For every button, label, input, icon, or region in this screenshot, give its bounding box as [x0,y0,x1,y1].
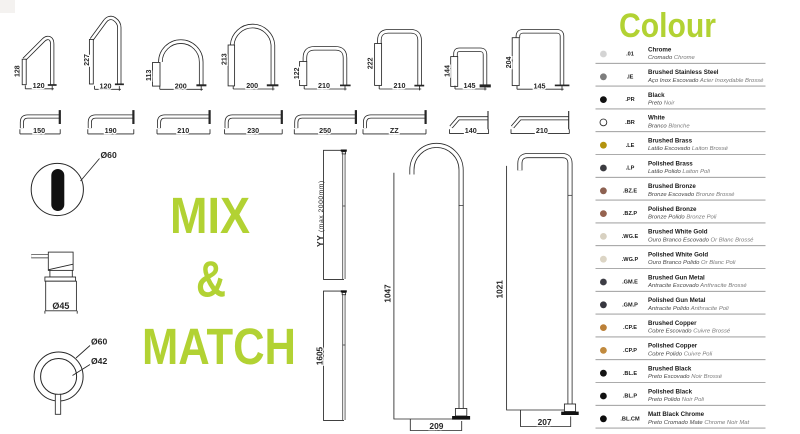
svg-text:.PR: .PR [625,97,634,103]
svg-text:145: 145 [534,81,546,90]
svg-text:.BZ.P: .BZ.P [623,211,638,217]
svg-text:140: 140 [465,126,477,135]
svg-text:200: 200 [175,82,187,91]
svg-text:Brushed White Gold: Brushed White Gold [648,229,708,236]
svg-text:Black: Black [648,92,665,99]
svg-text:1047: 1047 [383,284,392,303]
svg-text:Polished Black: Polished Black [648,388,693,395]
svg-text:.LE: .LE [626,143,635,149]
svg-text:Ouro Branco Escovado Or Blanc: Ouro Branco Escovado Or Blanc Brossé [648,237,754,243]
svg-text:210: 210 [536,126,548,135]
svg-text:Ø60: Ø60 [91,337,107,347]
svg-text:Polished Gun Metal: Polished Gun Metal [648,297,706,304]
svg-text:1605: 1605 [315,346,324,365]
svg-text:Cobre Polido Cuivre Poli: Cobre Polido Cuivre Poli [648,351,713,357]
svg-text:144: 144 [445,65,452,77]
svg-text:210: 210 [394,81,406,90]
svg-text:Polished Brass: Polished Brass [648,160,693,167]
svg-text:Ouro Branco Polido Or Blanc Po: Ouro Branco Polido Or Blanc Poli [648,260,736,266]
svg-text:Brushed Bronze: Brushed Bronze [648,183,696,190]
svg-text:ZZ: ZZ [390,126,399,135]
svg-text:Brushed Black: Brushed Black [648,366,692,373]
svg-text:Brushed Brass: Brushed Brass [648,138,693,145]
svg-text:Ø42: Ø42 [91,356,107,366]
svg-text:Branco Blanche: Branco Blanche [648,123,690,129]
svg-text:.WG.P: .WG.P [622,257,639,263]
svg-text:Brushed Copper: Brushed Copper [648,320,697,327]
svg-text:Latão Escovado Laiton Brossé: Latão Escovado Laiton Brossé [648,146,729,152]
svg-text:Bronze Escovado Bronze Brossé: Bronze Escovado Bronze Brossé [648,192,735,198]
svg-text:.BL.E: .BL.E [623,371,638,377]
svg-text:.WG.E: .WG.E [622,234,639,240]
svg-text:.CP.E: .CP.E [623,325,637,331]
svg-text:.CP.P: .CP.P [623,348,637,354]
svg-text:.BL.CM: .BL.CM [620,416,640,422]
svg-text:113: 113 [146,70,153,81]
svg-text:.LP: .LP [626,166,635,172]
svg-text:Cobre Escovado Cuivre Brossé: Cobre Escovado Cuivre Brossé [648,329,731,335]
svg-text:.BR: .BR [625,120,635,126]
svg-text:.BL.P: .BL.P [623,394,638,400]
svg-text:190: 190 [105,126,117,135]
svg-text:209: 209 [429,421,443,431]
svg-text:200: 200 [246,81,258,90]
svg-text:Latão Polido Laiton Poli: Latão Polido Laiton Poli [648,169,711,175]
svg-text:Bronze Polido Bronze Poli: Bronze Polido Bronze Poli [648,215,717,221]
svg-text:210: 210 [177,126,189,135]
svg-text:213: 213 [221,53,228,65]
svg-text:White: White [648,115,665,122]
svg-text:Preto Polido Noir Poli: Preto Polido Noir Poli [648,397,705,403]
svg-text:227: 227 [84,54,91,66]
svg-text:MIX: MIX [170,187,250,244]
svg-text:207: 207 [538,417,552,427]
svg-text:Polished White Gold: Polished White Gold [648,252,708,259]
svg-text:145: 145 [464,81,476,90]
svg-text:Matt Black Chrome: Matt Black Chrome [648,411,705,418]
svg-text:Preto Escovado Noir Brossé: Preto Escovado Noir Brossé [648,374,723,380]
svg-text:Antracite Escovado Anthracite: Antracite Escovado Anthracite Brossé [647,283,747,289]
svg-text:Colour: Colour [619,7,716,45]
svg-text:.GM.E: .GM.E [622,280,638,286]
svg-text:Preto Noir: Preto Noir [648,101,676,107]
svg-text:230: 230 [247,126,259,135]
svg-text:MATCH: MATCH [142,318,296,375]
svg-text:222: 222 [367,57,374,69]
svg-text:&: & [196,251,226,308]
svg-text:Chrome: Chrome [648,46,672,53]
svg-text:120: 120 [33,81,45,90]
svg-text:Ø60: Ø60 [101,150,117,160]
svg-text:Cromado Chrome: Cromado Chrome [648,55,696,61]
svg-text:210: 210 [318,81,330,90]
svg-text:Preto Cromado Mate Chrome Noir: Preto Cromado Mate Chrome Noir Mat [648,420,750,426]
svg-text:.IE: .IE [627,74,634,80]
svg-text:1021: 1021 [496,280,505,299]
svg-text:Antracite Polido Anthracite Po: Antracite Polido Anthracite Poli [647,306,729,312]
svg-text:.01: .01 [626,52,634,58]
svg-text:120: 120 [100,82,112,91]
svg-text:Brushed Gun Metal: Brushed Gun Metal [648,274,705,281]
svg-text:.GM.P: .GM.P [622,302,638,308]
svg-text:Polished Bronze: Polished Bronze [648,206,697,213]
svg-text:204: 204 [506,56,513,68]
svg-text:128: 128 [15,65,22,77]
svg-text:Aço Inox Escovado Acier Inoxyd: Aço Inox Escovado Acier Inoxydable Bross… [647,78,764,84]
svg-text:150: 150 [33,126,45,135]
svg-text:Ø45: Ø45 [52,301,69,311]
svg-text:.BZ.E: .BZ.E [623,188,638,194]
svg-text:122: 122 [294,67,301,79]
svg-text:Brushed Stainless Steel: Brushed Stainless Steel [648,69,719,76]
svg-text:Polished Copper: Polished Copper [648,343,698,350]
svg-text:250: 250 [319,126,331,135]
